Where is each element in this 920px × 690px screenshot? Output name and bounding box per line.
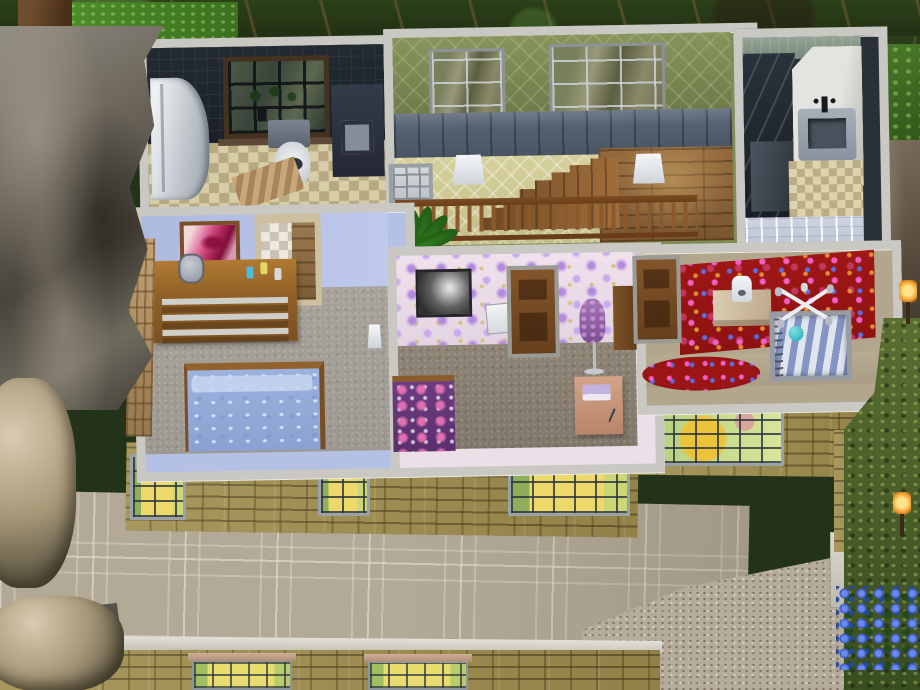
changing-table[interactable] [713,275,774,328]
room-stair-hall [383,23,761,273]
torch-lamp-upper[interactable] [898,280,918,328]
dress-form-mannequin[interactable] [579,298,608,378]
vanity-cabinet[interactable] [331,84,385,177]
room-sewing [387,242,665,477]
house-upper-floor [119,17,897,472]
portrait-painting[interactable] [415,269,472,318]
perfume-bottle[interactable] [260,262,267,274]
torch-post [900,514,904,536]
purple-bed[interactable] [392,375,455,452]
mobile-figure [825,316,832,325]
wall-sconce-right[interactable] [632,153,665,184]
scissors [608,408,615,422]
wall-sconce-left[interactable] [452,154,485,185]
baby-mobile[interactable] [773,280,838,331]
door-to-hall[interactable] [632,255,682,344]
torch-post [906,302,910,324]
mannequin-stand [592,342,595,368]
table-mirror[interactable] [178,253,205,283]
boulder [0,596,124,690]
wall-sconce[interactable] [367,324,381,348]
sink[interactable] [798,108,857,161]
lit-window-lower-2[interactable] [368,661,468,690]
boulder [0,378,76,588]
mobile-figure [827,284,834,293]
mannequin-bust [579,298,606,342]
torch-lamp-lower[interactable] [892,492,912,540]
drawer [162,297,289,305]
sewing-table[interactable] [574,376,623,435]
perfume-bottle[interactable] [246,266,253,278]
room-blue-bedroom [132,203,419,482]
mobile-figure [777,319,784,328]
window-trim [364,654,472,662]
round-red-rug[interactable] [642,356,761,392]
checker-floor [789,160,864,223]
lit-window-lower-1[interactable] [192,660,292,690]
potty-chair[interactable] [732,276,752,302]
perfume-bottle[interactable] [274,268,281,280]
fabric-stack [582,384,610,400]
blue-flowers [836,586,920,670]
mobile-figure [801,283,808,292]
double-bed-blue[interactable] [184,361,326,451]
mobile-figure [775,287,782,296]
drawer [162,328,289,336]
room-nursery [635,240,904,415]
door-to-hall[interactable] [506,265,560,358]
drawer [162,313,289,321]
faucet [821,96,827,112]
game-scene [0,0,920,690]
toilet-paper-holder[interactable] [258,108,267,121]
window-trim [188,653,296,661]
mannequin-base [584,368,604,374]
